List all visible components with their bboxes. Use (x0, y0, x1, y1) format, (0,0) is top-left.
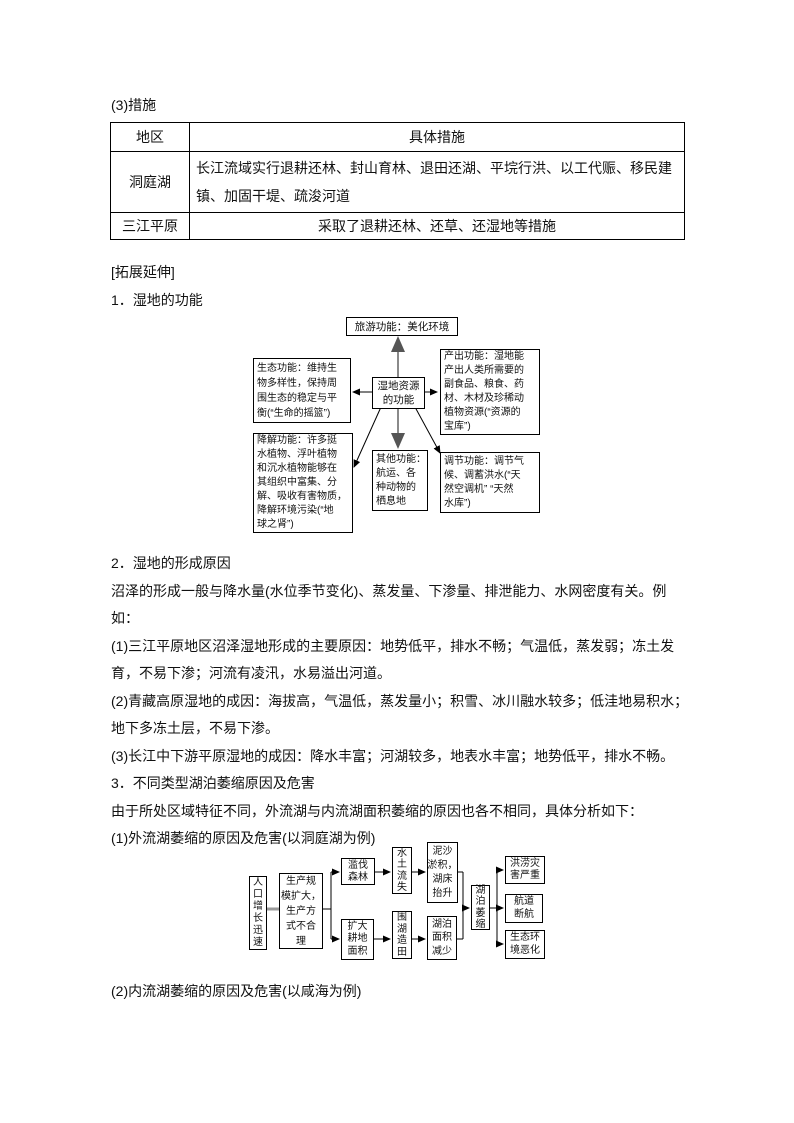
lake-area-decrease-box: 湖泊 面积 减少 (427, 916, 457, 960)
column-header-measures: 具体措施 (190, 123, 685, 152)
expand-farmland-box: 扩大 耕地 面积 (341, 919, 374, 960)
section1-heading: 1．湿地的功能 (111, 290, 203, 310)
cell-measures: 采取了退耕还林、还草、还湿地等措施 (190, 213, 685, 240)
cell-region: 三江平原 (111, 213, 190, 240)
column-header-region: 地区 (111, 123, 190, 152)
population-growth-box: 人 口 增 长 迅 速 (249, 876, 267, 950)
paragraph-yangtze-reason: (3)长江中下游平原湿地的成因：降水丰富；河湖较多，地表水丰富；地势低平，排水不… (111, 743, 689, 771)
body-text: 2．湿地的形成原因 沼泽的形成一般与降水量(水位季节变化)、蒸发量、下渗量、排泄… (111, 550, 689, 853)
soil-erosion-box: 水 土 流 失 (392, 847, 412, 894)
measures-heading: (3)措施 (111, 95, 156, 115)
output-function-box: 产出功能：湿地能 产出人类所需要的 副食品、粮食、药 材、木材及珍稀动 植物资源… (440, 349, 540, 435)
lake-reclamation-box: 围 湖 造 田 (392, 911, 412, 959)
paragraph-qingzang-reason: (2)青藏高原湿地的成因：海拔高，气温低，蒸发量小；积雪、冰川融水较多；低洼地易… (111, 688, 689, 743)
table-row: 三江平原 采取了退耕还林、还草、还湿地等措施 (111, 213, 685, 240)
eco-deterioration-box: 生态环 境恶化 (505, 930, 545, 959)
deforestation-box: 滥伐 森林 (341, 858, 375, 885)
flood-disaster-box: 洪涝灾 害严重 (505, 856, 545, 884)
table-header-row: 地区 具体措施 (111, 123, 685, 152)
paragraph-lake-intro: 由于所处区域特征不同，外流湖与内流湖面积萎缩的原因也各不相同，具体分析如下： (111, 798, 689, 826)
expand-heading: [拓展延伸] (111, 262, 175, 282)
inflow-lake-heading: (2)内流湖萎缩的原因及危害(以咸海为例) (111, 981, 361, 1001)
degrade-function-box: 降解功能：许多挺 水植物、浮叶植物 和沉水植物能够在 其组织中富集、分 解、吸收… (253, 433, 353, 533)
lake-shrink-flowchart: 人 口 增 长 迅 速 生产规 模扩大， 生产方 式不合 理 滥伐 森林 扩大 … (0, 840, 794, 970)
table-row: 洞庭湖 长江流域实行退耕还林、封山育林、退田还湖、平垸行洪、以工代赈、移民建 镇… (111, 152, 685, 213)
production-mode-box: 生产规 模扩大， 生产方 式不合 理 (279, 873, 323, 949)
paragraph-swamp-formation: 沼泽的形成一般与降水量(水位季节变化)、蒸发量、下渗量、排泄能力、水网密度有关。… (111, 578, 689, 633)
document-page: (3)措施 地区 具体措施 洞庭湖 长江流域实行退耕还林、封山育林、退田还湖、平… (0, 0, 794, 1123)
diagram-connectors (0, 315, 794, 550)
measures-table: 地区 具体措施 洞庭湖 长江流域实行退耕还林、封山育林、退田还湖、平垸行洪、以工… (110, 122, 685, 240)
cell-measures: 长江流域实行退耕还林、封山育林、退田还湖、平垸行洪、以工代赈、移民建 镇、加固干… (190, 152, 685, 213)
other-function-box: 其他功能： 航运、各 种动物的 栖息地 (372, 450, 428, 511)
section3-heading: 3．不同类型湖泊萎缩原因及危害 (111, 770, 689, 798)
wetland-resources-center-box: 湿地资源 的功能 (372, 377, 425, 409)
paragraph-sanjiang-reason: (1)三江平原地区沼泽湿地形成的主要原因：地势低平，排水不畅；气温低，蒸发弱；冻… (111, 633, 689, 688)
tourism-function-box: 旅游功能：美化环境 (346, 317, 458, 336)
navigation-cutoff-box: 航道 断航 (505, 894, 543, 923)
cell-region: 洞庭湖 (111, 152, 190, 213)
wetland-functions-diagram: 旅游功能：美化环境 生态功能：维持生 物多样性，保持周 围生态的稳定与平 衡(“… (0, 315, 794, 550)
regulate-function-box: 调节功能：调节气 候、调蓄洪水(“天 然空调机” “天然 水库”) (440, 452, 540, 513)
silt-deposit-box: 泥沙 淤积， 湖床 抬升 (427, 842, 458, 903)
section2-heading: 2．湿地的形成原因 (111, 550, 689, 578)
ecology-function-box: 生态功能：维持生 物多样性，保持周 围生态的稳定与平 衡(“生命的摇篮”) (253, 358, 351, 423)
lake-shrink-box: 湖 泊 萎 缩 (471, 885, 490, 930)
